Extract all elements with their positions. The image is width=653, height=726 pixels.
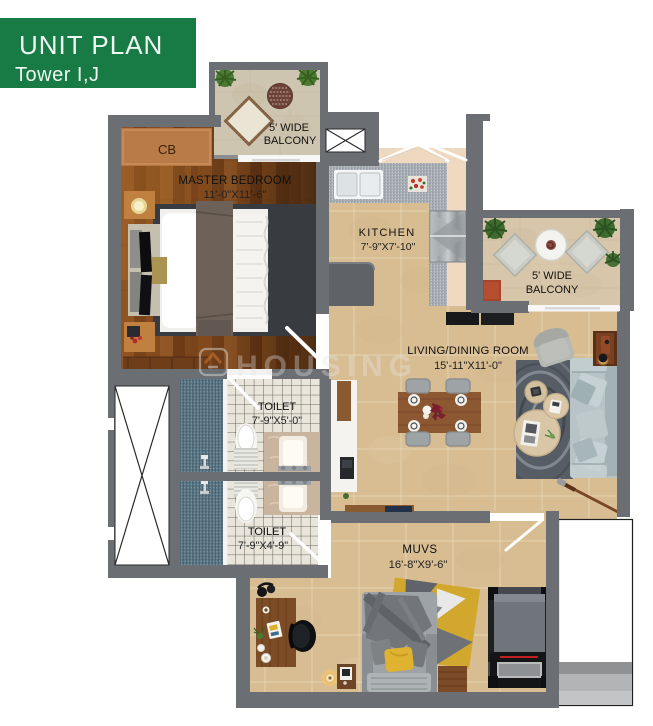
svg-text:5' WIDE: 5' WIDE [269,122,309,134]
svg-text:KITCHEN: KITCHEN [359,227,416,239]
svg-text:7'-9"X7'-10": 7'-9"X7'-10" [361,241,416,253]
svg-text:TOILET: TOILET [258,401,297,413]
svg-text:HOUSING: HOUSING [236,350,418,383]
svg-text:UNIT PLAN: UNIT PLAN [19,30,163,60]
svg-text:16'-8"X9'-6": 16'-8"X9'-6" [389,559,448,571]
svg-text:TOILET: TOILET [248,526,287,538]
svg-text:BALCONY: BALCONY [526,284,579,296]
svg-text:MUVS: MUVS [402,544,437,556]
svg-text:BALCONY: BALCONY [264,135,317,147]
svg-text:7'-9"X5'-0": 7'-9"X5'-0" [252,415,302,427]
svg-text:Tower I,J: Tower I,J [15,64,100,86]
svg-text:7'-9"X4'-9": 7'-9"X4'-9" [238,540,288,552]
svg-text:5' WIDE: 5' WIDE [532,270,572,282]
svg-text:LIVING/DINING ROOM: LIVING/DINING ROOM [407,345,529,357]
svg-text:CB: CB [158,142,176,157]
svg-text:15'-11"X11'-0": 15'-11"X11'-0" [434,360,502,372]
svg-text:11'-0"X11'-6": 11'-0"X11'-6" [204,189,267,201]
svg-text:MASTER BEDROOM: MASTER BEDROOM [178,175,291,187]
